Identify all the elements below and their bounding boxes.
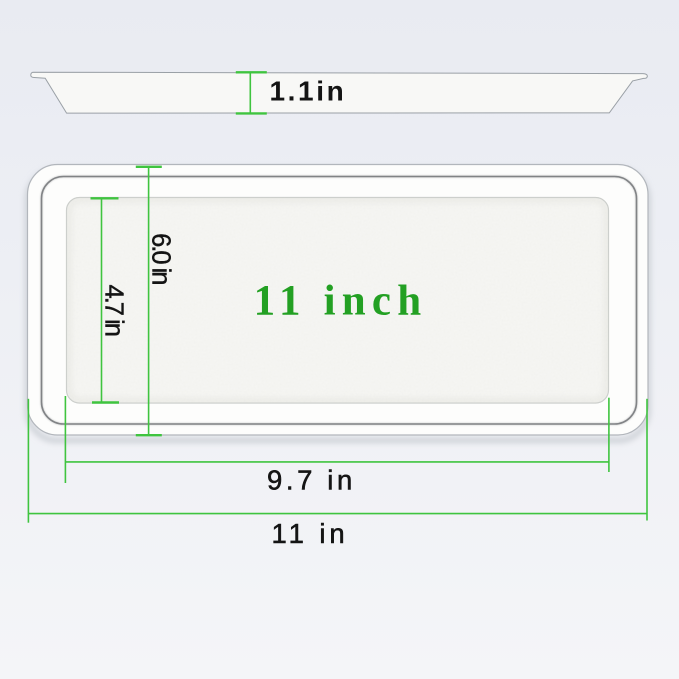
svg-text:11 inch: 11 inch bbox=[254, 278, 428, 325]
svg-text:11 in: 11 in bbox=[272, 518, 349, 549]
svg-text:4.7 in: 4.7 in bbox=[100, 285, 128, 336]
svg-text:9.7 in: 9.7 in bbox=[267, 465, 356, 496]
svg-text:1.1in: 1.1in bbox=[270, 76, 347, 107]
svg-text:6.0 in: 6.0 in bbox=[146, 233, 174, 284]
